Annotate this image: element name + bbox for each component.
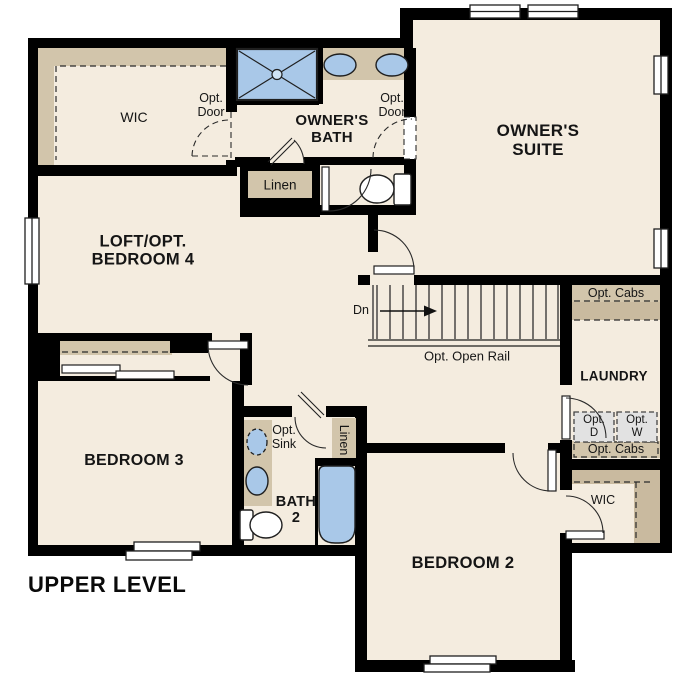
toilet-owner [360, 174, 411, 205]
annotation-opt-door-suite: Opt. Door [374, 91, 410, 119]
stairs [368, 285, 560, 346]
room-label-wic-owner: WIC [120, 110, 147, 126]
annotation-opt-washer: Opt. W [623, 414, 651, 440]
annotation-opt-sink: Opt. Sink [267, 423, 301, 451]
bath2-sinks [246, 429, 268, 495]
room-label-loft: LOFT/OPT. BEDROOM 4 [68, 233, 218, 270]
annotation-opt-door-wic: Opt. Door [193, 91, 229, 119]
room-label-wic-bedroom2: WIC [591, 493, 615, 507]
floor-plan: WIC Opt. Door OWNER'S BATH Opt. Door OWN… [0, 0, 687, 687]
plan-title: UPPER LEVEL [28, 572, 186, 598]
room-label-owners-bath: OWNER'S BATH [286, 113, 378, 147]
annotation-dn: Dn [353, 303, 369, 317]
room-label-bath2: BATH 2 [273, 494, 319, 526]
room-label-owners-suite: OWNER'S SUITE [483, 121, 593, 159]
room-label-laundry: LAUNDRY [580, 368, 648, 383]
owner-vanity-sinks [324, 54, 408, 76]
annotation-opt-dryer: Opt. D [580, 414, 608, 440]
room-label-bedroom3: BEDROOM 3 [84, 452, 184, 470]
annotation-linen-bath2: Linen [337, 425, 351, 456]
annotation-opt-cabs-lower: Opt. Cabs [588, 442, 644, 456]
tub [319, 466, 355, 543]
room-label-bedroom2: BEDROOM 2 [412, 554, 515, 572]
annotation-linen-owner: Linen [263, 177, 296, 192]
shower [237, 49, 317, 100]
annotation-opt-cabs-upper: Opt. Cabs [588, 286, 644, 300]
closet-bypass-doors [62, 365, 174, 379]
annotation-opt-open-rail: Opt. Open Rail [424, 350, 510, 365]
